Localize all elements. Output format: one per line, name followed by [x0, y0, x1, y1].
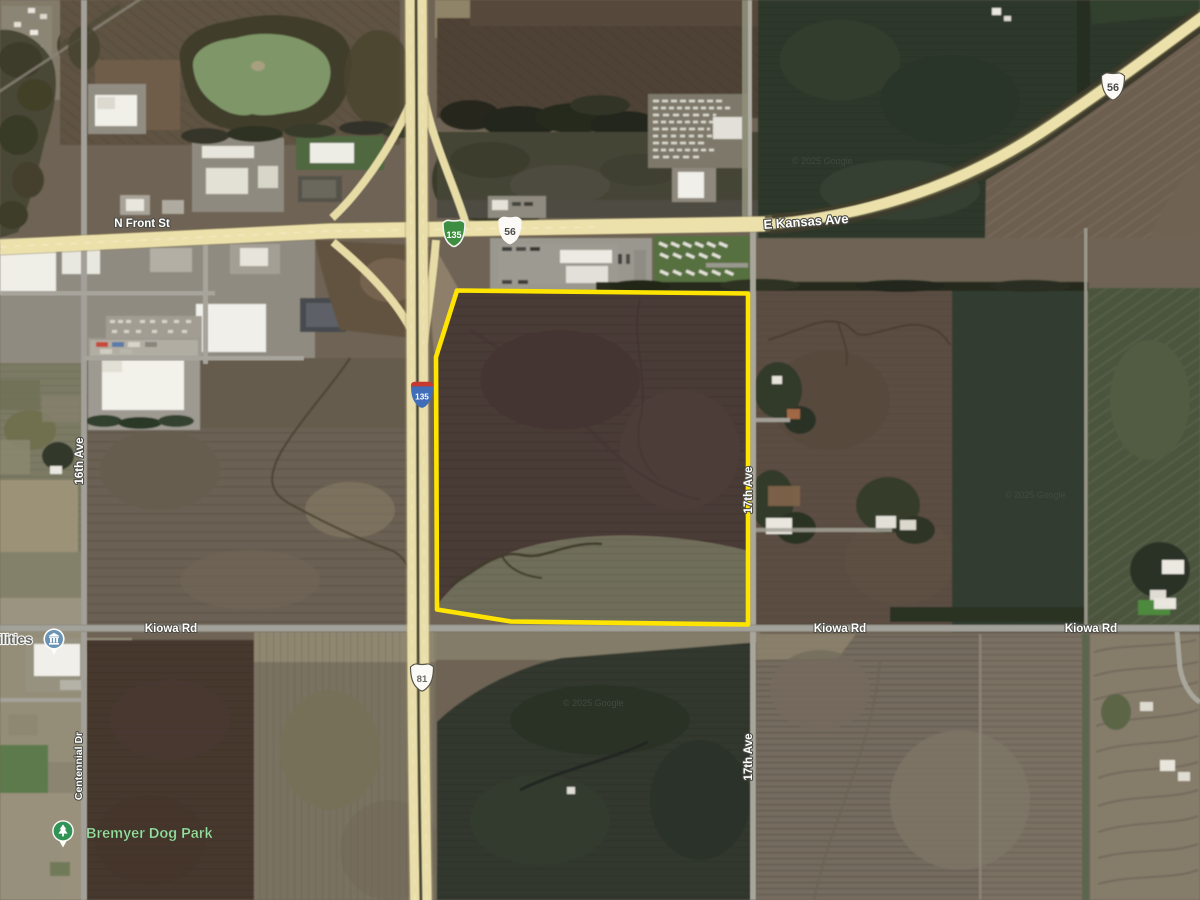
- svg-text:17th Ave: 17th Ave: [743, 733, 755, 780]
- svg-text:56: 56: [504, 227, 516, 238]
- svg-text:N Front St: N Front St: [114, 218, 170, 230]
- svg-text:Centennial Dr: Centennial Dr: [73, 732, 85, 800]
- svg-text:Kiowa Rd: Kiowa Rd: [1065, 623, 1117, 635]
- svg-text:17th Ave: 17th Ave: [743, 466, 755, 513]
- svg-text:81: 81: [417, 674, 428, 685]
- svg-text:Kiowa Rd: Kiowa Rd: [145, 623, 197, 635]
- svg-text:Bremyer Dog Park: Bremyer Dog Park: [86, 826, 213, 842]
- svg-text:56: 56: [1107, 82, 1119, 94]
- svg-text:135: 135: [446, 230, 461, 240]
- svg-text:Kiowa Rd: Kiowa Rd: [814, 623, 866, 635]
- svg-text:© 2025 Google: © 2025 Google: [563, 698, 624, 708]
- svg-text:135: 135: [415, 393, 429, 402]
- svg-text:© 2025 Google: © 2025 Google: [792, 156, 853, 166]
- svg-text:© 2025 Google: © 2025 Google: [1005, 490, 1066, 500]
- svg-text:16th Ave: 16th Ave: [74, 437, 86, 484]
- svg-text:ilities: ilities: [0, 632, 33, 647]
